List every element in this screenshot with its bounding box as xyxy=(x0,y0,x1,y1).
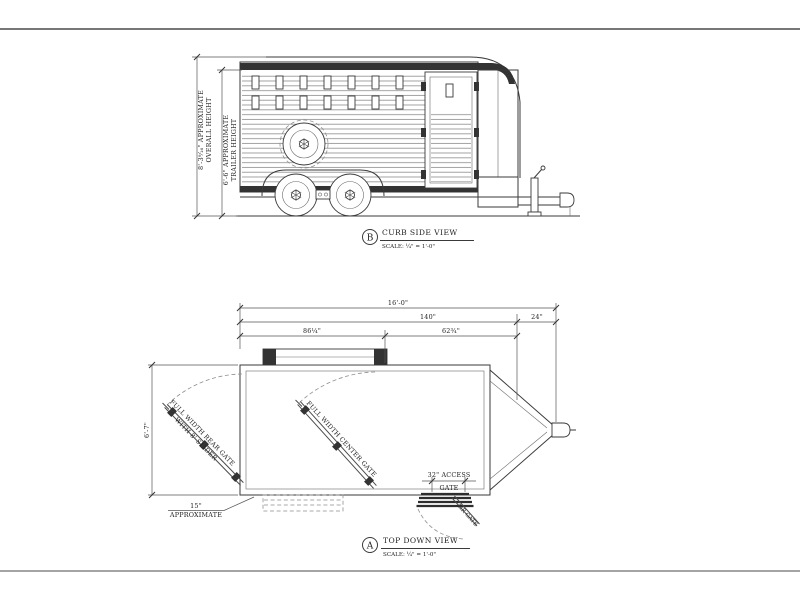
top-rail xyxy=(240,63,492,70)
top-view-scale: SCALE: ¼" = 1'-0" xyxy=(383,551,436,558)
side-view-title-block: B CURB SIDE VIEW SCALE: ¼" = 1'-0" xyxy=(363,228,475,250)
note-rear-offset: 15" APPROXIMATE xyxy=(168,497,254,519)
dim-overall-height-label: OVERALL HEIGHT xyxy=(205,97,213,162)
rear-offset-value: 15" xyxy=(190,502,202,510)
rear-section-value: 86¼" xyxy=(303,327,321,335)
plan-fender-road xyxy=(263,495,343,511)
top-rail-nose xyxy=(492,63,515,84)
access-gate: AIR GATE xyxy=(417,494,480,539)
tongue-assembly xyxy=(518,166,574,216)
axle-equalizer xyxy=(316,190,330,199)
front-section-value: 62¾" xyxy=(442,327,460,335)
width-value: 6'-7" xyxy=(143,422,151,438)
top-view-title: TOP DOWN VIEW xyxy=(383,536,458,545)
rear-gate-label-1: FULL WIDTH REAR GATE xyxy=(168,398,237,468)
jack xyxy=(528,166,545,216)
access-gate-dim-1: 32" ACCESS xyxy=(428,471,471,479)
access-gate-dim-2: GATE xyxy=(439,484,458,492)
side-door xyxy=(421,72,479,188)
curb-side-view: 8'-3⁹⁄₁₆" APPROXIMATE OVERALL HEIGHT 6'-… xyxy=(192,54,580,250)
dim-trailer-height-value: 6'-6" APPROXIMATE xyxy=(222,115,230,186)
overall-length-value: 16'-0" xyxy=(388,299,408,307)
side-view-scale: SCALE: ¼" = 1'-0" xyxy=(382,243,435,250)
wheel-rear xyxy=(275,174,317,216)
rear-offset-label: APPROXIMATE xyxy=(169,511,222,519)
rock-guard xyxy=(478,177,518,207)
top-view-title-block: A TOP DOWN VIEW SCALE: ¼" = 1'-0" xyxy=(363,536,471,558)
drawing-sheet: 8'-3⁹⁄₁₆" APPROXIMATE OVERALL HEIGHT 6'-… xyxy=(0,0,800,600)
dim-trailer-height: 6'-6" APPROXIMATE TRAILER HEIGHT xyxy=(217,67,242,219)
plan-tongue xyxy=(490,370,576,490)
top-down-view: FULL WIDTH REAR GATE WITH 8' SLIDER FULL… xyxy=(143,299,576,558)
body-length-value: 140" xyxy=(420,313,436,321)
dim-trailer-height-label: TRAILER HEIGHT xyxy=(230,118,238,181)
center-gate-label: FULL WIDTH CENTER GATE xyxy=(305,399,379,478)
top-view-badge: A xyxy=(366,542,374,552)
coupler xyxy=(560,193,574,207)
dim-overall-height-value: 8'-3⁹⁄₁₆" APPROXIMATE xyxy=(197,90,205,170)
side-view-badge: B xyxy=(367,234,374,244)
plan-coupler xyxy=(552,423,570,437)
center-gate: FULL WIDTH CENTER GATE xyxy=(296,372,379,488)
tongue-length-value: 24" xyxy=(531,313,543,321)
plan-fender-curb xyxy=(263,349,387,365)
rear-gate: FULL WIDTH REAR GATE WITH 8' SLIDER xyxy=(163,374,244,485)
wheel-front xyxy=(329,174,371,216)
side-view-title: CURB SIDE VIEW xyxy=(382,228,458,237)
